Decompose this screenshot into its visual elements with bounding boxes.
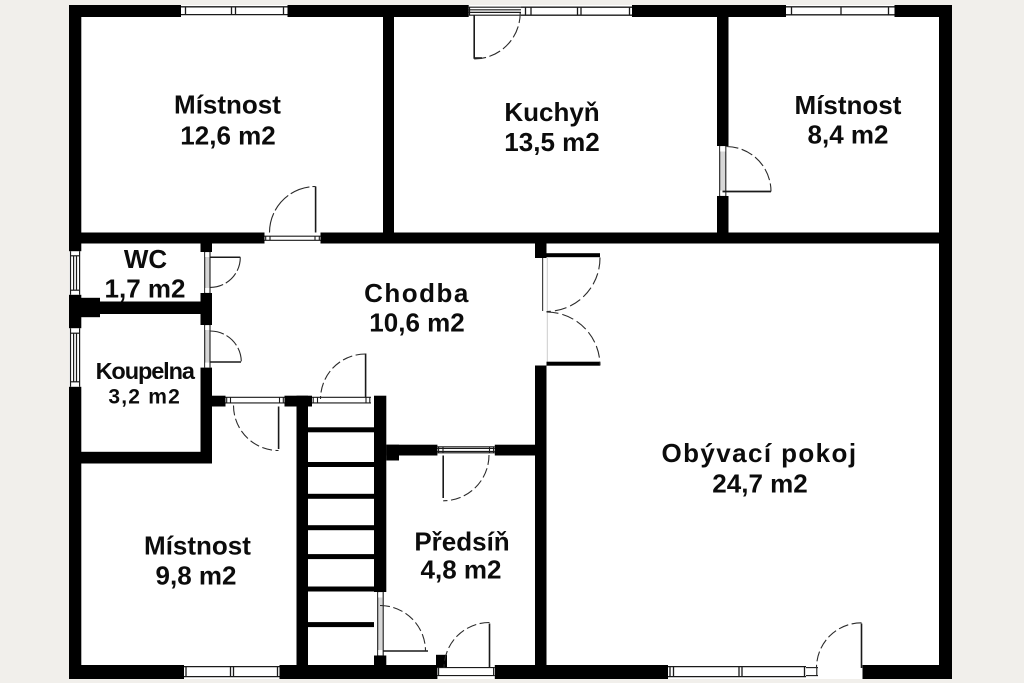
svg-text:24,7 m2: 24,7 m2 <box>712 468 807 498</box>
svg-text:1,7 m2: 1,7 m2 <box>105 274 186 304</box>
svg-text:Místnost: Místnost <box>144 531 251 561</box>
svg-text:13,5 m2: 13,5 m2 <box>504 127 599 157</box>
svg-text:Koupelna: Koupelna <box>96 358 196 384</box>
svg-text:WC: WC <box>124 244 168 274</box>
svg-text:12,6 m2: 12,6 m2 <box>180 120 275 150</box>
svg-text:Místnost: Místnost <box>174 89 281 119</box>
svg-text:Kuchyň: Kuchyň <box>504 97 599 127</box>
svg-text:Místnost: Místnost <box>795 90 902 120</box>
svg-text:Chodba: Chodba <box>364 278 470 308</box>
svg-text:Obývací pokoj: Obývací pokoj <box>662 438 858 468</box>
svg-text:Předsíň: Předsíň <box>414 527 509 557</box>
svg-text:10,6 m2: 10,6 m2 <box>369 308 464 338</box>
svg-text:3,2 m2: 3,2 m2 <box>108 385 181 408</box>
svg-text:8,4 m2: 8,4 m2 <box>808 120 889 150</box>
svg-text:9,8 m2: 9,8 m2 <box>156 561 237 591</box>
svg-text:4,8 m2: 4,8 m2 <box>421 554 502 584</box>
